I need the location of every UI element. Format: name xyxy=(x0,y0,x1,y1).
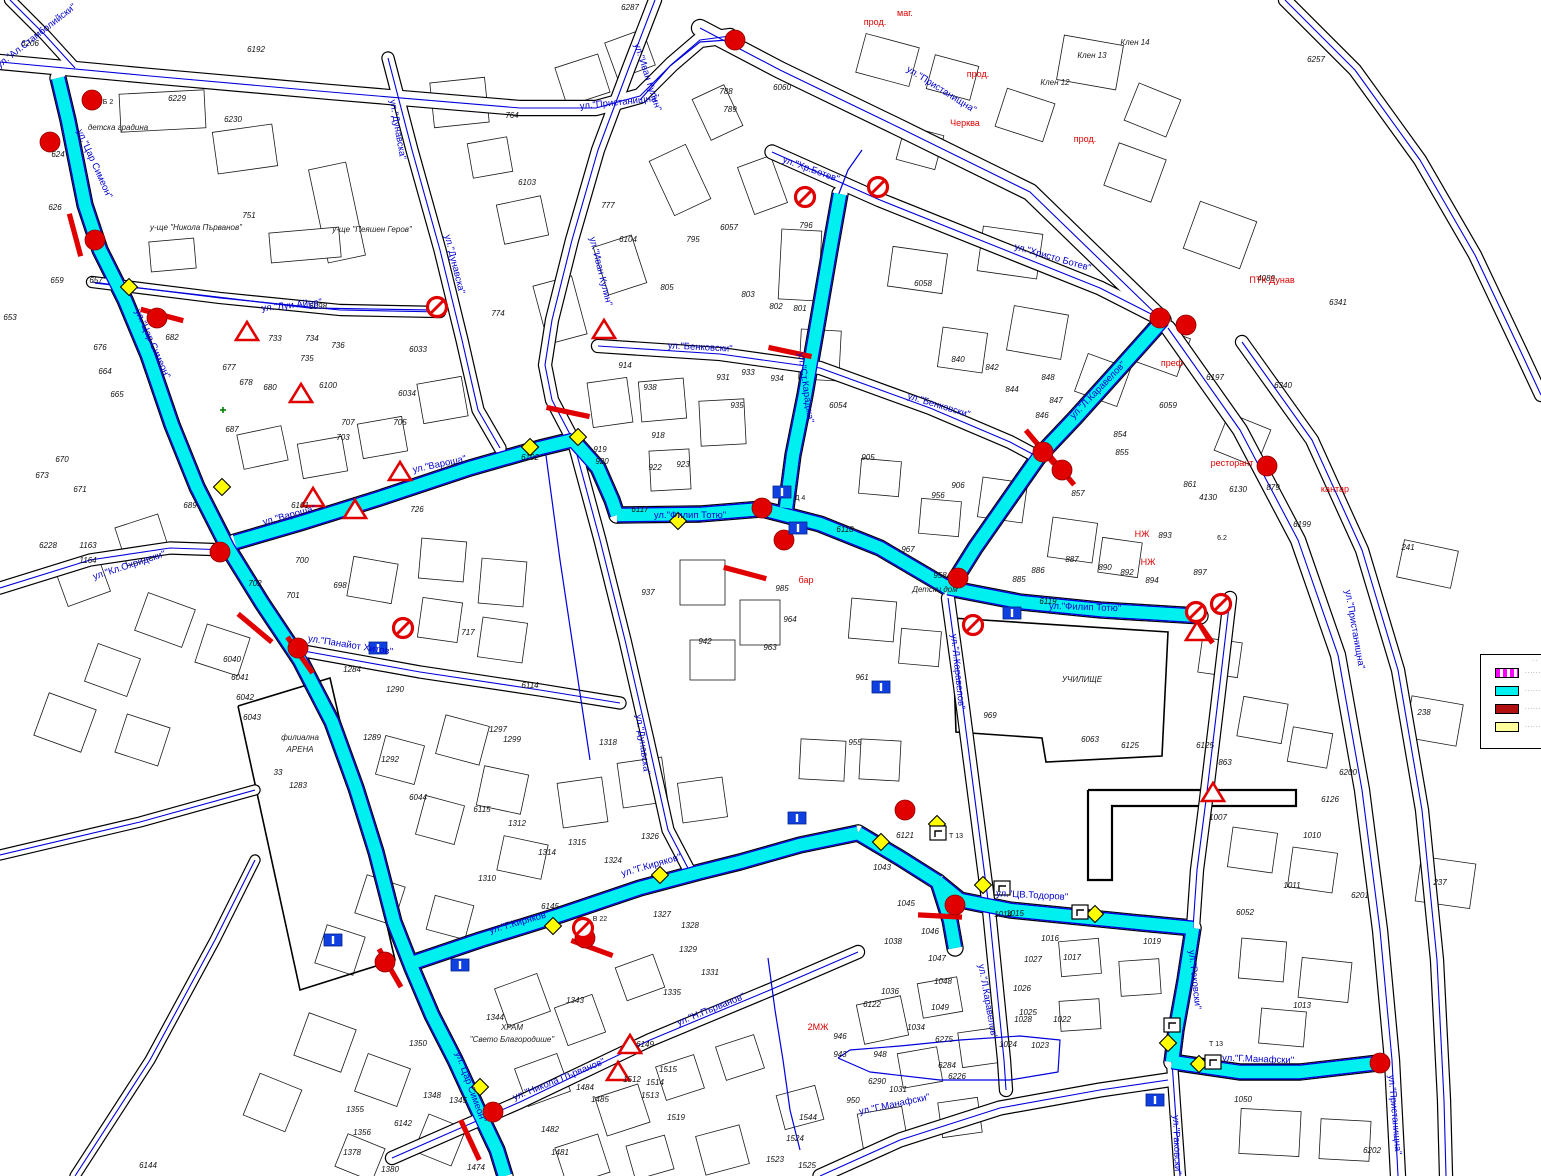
parcel-number: 6059 xyxy=(1159,401,1177,410)
hydrant-node-icon xyxy=(945,895,965,915)
parcel-number: 764 xyxy=(505,111,519,120)
legend-swatch-rehab-main xyxy=(1495,686,1519,696)
parcel-number: 893 xyxy=(1158,531,1172,540)
building-outline xyxy=(1238,938,1286,982)
parcel-number: 682 xyxy=(165,333,179,342)
building-outline xyxy=(294,1013,356,1072)
building-outline xyxy=(995,88,1055,141)
parcel-number: 934 xyxy=(770,374,784,383)
meter-box-glyph xyxy=(1154,1096,1156,1104)
parcel-number: 892 xyxy=(1120,568,1134,577)
parcel-number: 1045 xyxy=(897,899,915,908)
poi-label: детска градина xyxy=(88,123,149,132)
parcel-number: 922 xyxy=(648,463,662,472)
legend-label: ······ xyxy=(1525,706,1541,712)
parcel-number: 906 xyxy=(951,481,965,490)
poi-label-red: бар xyxy=(799,575,814,585)
map-legend: · · ·························· xyxy=(1480,654,1541,749)
parcel-number: 1299 xyxy=(503,735,521,744)
parcel-number: 1515 xyxy=(659,1065,677,1074)
building-outline xyxy=(135,593,196,648)
parcel-number: 1482 xyxy=(541,1125,559,1134)
parcel-number: 905 xyxy=(861,453,875,462)
parcel-number: 1024 xyxy=(999,1040,1017,1049)
building-outline xyxy=(1227,827,1277,873)
parcel-number: 6044 xyxy=(409,793,427,802)
parcel-number: 846 xyxy=(1035,411,1049,420)
parcel-number: 1328 xyxy=(681,921,699,930)
parcel-number: 967 xyxy=(901,545,915,554)
parcel-number: 6275 xyxy=(935,1035,953,1044)
parcel-number: 657 xyxy=(89,276,103,285)
parcel-number: 6104 xyxy=(619,235,637,244)
parcel-number: 1523 xyxy=(766,1155,784,1164)
parcel-number: 1046 xyxy=(921,927,939,936)
parcel-number: 670 xyxy=(55,455,69,464)
parcel-number: 6200 xyxy=(1339,768,1357,777)
parcel-number: 717 xyxy=(461,628,475,637)
building-outline xyxy=(776,1085,824,1129)
parcel-number: 1025 xyxy=(1019,1008,1037,1017)
parcel-number: 861 xyxy=(1183,480,1196,489)
building-outline xyxy=(1183,201,1256,269)
warning-triangle-icon xyxy=(593,320,615,338)
parcel-number: 1324 xyxy=(604,856,622,865)
poi-label: АРЕНА xyxy=(285,745,313,754)
parcel-number: 6054 xyxy=(829,401,847,410)
meter-box-glyph xyxy=(332,936,334,944)
parcel-number: 1335 xyxy=(663,988,681,997)
parcel-number: 1284 xyxy=(343,665,361,674)
building-outline xyxy=(859,458,902,496)
legend-swatch-existing-main xyxy=(1495,704,1519,714)
building-outline xyxy=(740,600,780,645)
poi-label: Детски дом xyxy=(911,585,958,594)
parcel-number: 920 xyxy=(595,457,609,466)
parcel-number: 705 xyxy=(393,418,407,427)
parcel-number: 6114 xyxy=(521,681,539,690)
building-outline xyxy=(799,739,846,781)
parcel-number: 624 xyxy=(51,150,65,159)
parcel-number: 677 xyxy=(222,363,236,372)
parcel-number: 6063 xyxy=(1081,735,1099,744)
hydrant-node-icon xyxy=(1150,308,1170,328)
parcel-number: 777 xyxy=(601,201,615,210)
hydrant-node-icon xyxy=(752,498,772,518)
parcel-number: 963 xyxy=(763,643,777,652)
parcel-number: 1348 xyxy=(423,1091,441,1100)
building-outline xyxy=(848,598,896,642)
parcel-number: 1481 xyxy=(551,1148,569,1157)
parcel-number: 1378 xyxy=(343,1148,361,1157)
parcel-number: 897 xyxy=(1193,568,1207,577)
hydrant-node-icon xyxy=(288,638,308,658)
parcel-number: 241 xyxy=(1400,543,1414,552)
parcel-number: 1297 xyxy=(489,725,507,734)
parcel-number: 847 xyxy=(1049,396,1063,405)
parcel-number: 950 xyxy=(846,1096,860,1105)
parcel-number: 803 xyxy=(741,290,755,299)
parcel-number: 931 xyxy=(716,373,729,382)
parcel-number: 671 xyxy=(73,485,86,494)
parcel-number: 969 xyxy=(983,711,997,720)
building-outline xyxy=(1239,1108,1301,1156)
parcel-number: 964 xyxy=(783,615,797,624)
parcel-number: 6033 xyxy=(409,345,427,354)
poi-label-red: прод. xyxy=(967,69,989,79)
parcel-number: 1343 xyxy=(566,996,584,1005)
building-outline xyxy=(1007,306,1069,360)
parcel-number: 1544 xyxy=(799,1113,817,1122)
poi-label: "Свето Благородише" xyxy=(470,1035,556,1044)
parcel-number: 844 xyxy=(1005,385,1019,394)
poi-label: Клен 14 xyxy=(1120,38,1150,47)
building-outline xyxy=(85,644,141,697)
parcel-number: 6229 xyxy=(168,94,186,103)
parcel-number: 751 xyxy=(242,211,255,220)
parcel-number: 1315 xyxy=(568,838,586,847)
building-outline xyxy=(34,693,96,752)
poi-label-red: НЖ xyxy=(1135,529,1150,539)
parcel-number: 774 xyxy=(491,309,505,318)
building-outline xyxy=(297,436,347,478)
parcel-number: 733 xyxy=(268,334,282,343)
hydrant-node-icon xyxy=(375,952,395,972)
parcel-number: 805 xyxy=(660,283,674,292)
parcel-number: 6121 xyxy=(896,831,914,840)
parcel-number: 1019 xyxy=(1143,937,1161,946)
poi-label: ХРАМ xyxy=(500,1023,523,1032)
parcel-number: 795 xyxy=(686,235,700,244)
symbol-annotation: 6.2 xyxy=(1217,535,1227,542)
parcel-number: 938 xyxy=(643,383,657,392)
building-outline xyxy=(417,597,462,642)
parcel-number: 1329 xyxy=(679,945,697,954)
parcel-number: 1016 xyxy=(1041,934,1059,943)
road-surface xyxy=(75,860,255,1176)
parcel-number: 653 xyxy=(3,313,17,322)
parcel-number: 1023 xyxy=(1031,1041,1049,1050)
parcel-number: 726 xyxy=(410,505,424,514)
parcel-number: 6226 xyxy=(948,1072,966,1081)
parcel-number: 676 xyxy=(93,343,107,352)
legend-item-existing-main: ······ xyxy=(1481,700,1541,718)
building-outline xyxy=(690,640,735,680)
parcel-number: 1289 xyxy=(363,733,381,742)
legend-item-rehab-main: ······ xyxy=(1481,682,1541,700)
building-outline xyxy=(416,796,465,845)
parcel-number: 1290 xyxy=(386,685,404,694)
parcel-number: 948 xyxy=(873,1050,887,1059)
parcel-number: 6040 xyxy=(223,655,241,664)
poi-label-red: Черква xyxy=(950,118,980,128)
poi-label: Клен 12 xyxy=(1040,78,1070,87)
street-label: ул."Хр.Ботев" xyxy=(781,154,841,185)
parcel-number: 855 xyxy=(1115,448,1129,457)
parcel-number: 6230 xyxy=(224,115,242,124)
hydrant-node-icon xyxy=(1176,315,1196,335)
parcel-number: 1485 xyxy=(591,1095,609,1104)
parcel-number: 702 xyxy=(248,579,262,588)
parcel-number: 1049 xyxy=(931,1003,949,1012)
parcel-number: 802 xyxy=(769,302,783,311)
parcel-number: 985 xyxy=(775,584,789,593)
parcel-number: 6340 xyxy=(1274,381,1292,390)
parcel-number: 33 xyxy=(274,768,283,777)
poi-label-red: преф xyxy=(1161,358,1184,368)
parcel-number: 848 xyxy=(1041,373,1055,382)
parcel-number: 6100 xyxy=(319,381,337,390)
parcel-number: 698 xyxy=(333,581,347,590)
building-outline xyxy=(1237,696,1288,743)
parcel-number: 943 xyxy=(833,1050,847,1059)
parcel-number: 6102 xyxy=(521,453,539,462)
parcel-number: 1314 xyxy=(538,848,556,857)
road-casing xyxy=(1168,328,1398,1176)
warning-triangle-icon xyxy=(290,384,312,402)
parcel-number: 1164 xyxy=(79,556,97,565)
parcel-number: 1514 xyxy=(646,1078,664,1087)
building-outline xyxy=(149,238,196,272)
building-outline xyxy=(436,715,490,765)
parcel-number: 1345 xyxy=(449,1096,467,1105)
valve-bar-icon xyxy=(723,565,767,581)
parcel-number: 6041 xyxy=(231,673,249,682)
parcel-number: 735 xyxy=(300,354,314,363)
building-outline xyxy=(899,628,942,666)
building-outline xyxy=(426,895,474,939)
parcel-number: 918 xyxy=(651,431,665,440)
building-outline xyxy=(497,836,548,880)
parcel-number: 1350 xyxy=(409,1039,427,1048)
building-outline xyxy=(237,426,288,470)
poi-label-red: ресторант xyxy=(1211,458,1254,468)
street-label: ул."Раковски" xyxy=(1170,1115,1183,1175)
poi-label-red: прод. xyxy=(864,17,886,27)
symbol-annotation: В 22 xyxy=(593,916,608,923)
building-outline xyxy=(467,137,512,178)
legend-label: ······ xyxy=(1525,688,1541,694)
parcel-number: 687 xyxy=(225,425,239,434)
parcel-number: 6257 xyxy=(1307,55,1325,64)
building-outline xyxy=(355,1054,411,1107)
parcel-number: 1356 xyxy=(353,1128,371,1137)
hydrant-box-icon xyxy=(1205,1055,1221,1069)
parcel-number: 890 xyxy=(1098,563,1112,572)
parcel-number: 701 xyxy=(286,591,299,600)
building-outline xyxy=(1298,957,1352,1002)
parcel-number: 1048 xyxy=(934,977,952,986)
parcel-number: 946 xyxy=(833,1032,847,1041)
parcel-number: 6144 xyxy=(139,1161,157,1170)
parcel-number: 1007 xyxy=(1209,813,1227,822)
parcel-number: 1283 xyxy=(289,781,307,790)
parcel-number: 919 xyxy=(593,445,607,454)
building-outline xyxy=(937,327,987,373)
building-outline xyxy=(212,124,277,174)
building-outline xyxy=(195,624,250,676)
meter-box-glyph xyxy=(796,814,798,822)
parcel-number: 6228 xyxy=(39,541,57,550)
parcel-number: 665 xyxy=(110,390,124,399)
poi-label: УЧИЛИЩЕ xyxy=(1061,675,1103,684)
parcel-number: 659 xyxy=(50,276,64,285)
parcel-number: 707 xyxy=(341,418,355,427)
poi-label-red: 2МЖ xyxy=(808,1022,830,1032)
hydrant-node-icon xyxy=(1257,456,1277,476)
parcel-number: 1380 xyxy=(381,1165,399,1174)
legend-swatch-planned-main xyxy=(1495,668,1519,678)
hydrant-node-icon xyxy=(1370,1053,1390,1073)
parcel-number: 854 xyxy=(1113,430,1127,439)
building-outline xyxy=(269,227,341,263)
parcel-number: 914 xyxy=(618,361,632,370)
parcel-number: 1355 xyxy=(346,1105,364,1114)
meter-box-glyph xyxy=(781,488,783,496)
parcel-number: 1331 xyxy=(701,968,719,977)
shaft-diamond-icon xyxy=(214,479,231,496)
parcel-number: 6057 xyxy=(720,223,738,232)
parcel-number: 879 xyxy=(1266,483,1280,492)
building-outline xyxy=(677,777,727,823)
parcel-number: 1312 xyxy=(508,819,526,828)
building-outline xyxy=(496,196,548,244)
parcel-number: 1050 xyxy=(1234,1095,1252,1104)
parcel-number: 956 xyxy=(931,491,945,500)
parcel-number: 1310 xyxy=(478,874,496,883)
legend-item-planned-main: ········ xyxy=(1481,664,1541,682)
poi-label: у-ще "Пеяшен Геров" xyxy=(331,225,413,234)
parcel-number: 1015 xyxy=(1006,909,1024,918)
symbol-annotation: Б 2 xyxy=(103,99,114,106)
parcel-number: 937 xyxy=(641,588,655,597)
parcel-number: 6043 xyxy=(243,713,261,722)
building-outline xyxy=(1124,83,1181,137)
building-outline xyxy=(696,1125,750,1175)
symbol-annotation: Т 13 xyxy=(1209,1041,1223,1048)
building-outline xyxy=(897,1047,942,1088)
parcel-number: 1017 xyxy=(1063,953,1081,962)
parcel-number: 6341 xyxy=(1329,298,1347,307)
road-surface xyxy=(0,790,255,855)
hydrant-box-icon xyxy=(930,826,946,840)
parcel-number: 6290 xyxy=(868,1077,886,1086)
parcel-number: 801 xyxy=(793,304,806,313)
building-outline xyxy=(615,954,665,1001)
parcel-number: 1011 xyxy=(1283,881,1300,890)
parcel-number: 1519 xyxy=(667,1113,685,1122)
building-outline xyxy=(347,556,398,603)
rehab-water-main xyxy=(858,833,938,882)
legend-label: ········ xyxy=(1525,670,1541,676)
parcel-number: 958 xyxy=(933,571,947,580)
building-outline xyxy=(859,739,901,781)
hydrant-node-icon xyxy=(1033,442,1053,462)
warning-triangle-icon xyxy=(389,462,411,480)
hydrant-node-icon xyxy=(210,542,230,562)
parcel-number: 680 xyxy=(263,383,277,392)
parcel-number: 6287 xyxy=(621,3,639,12)
poi-label-red: кантар xyxy=(1321,484,1349,494)
building-outline xyxy=(919,498,962,536)
rehab-water-main xyxy=(938,882,1193,928)
building-outline xyxy=(243,1073,302,1132)
parcel-number: 885 xyxy=(1012,575,1026,584)
parcel-number: 1031 xyxy=(889,1085,907,1094)
building-outline xyxy=(738,156,788,215)
parcel-number: 664 xyxy=(98,367,112,376)
parcel-number: 736 xyxy=(331,341,345,350)
symbol-annotation: Т 13 xyxy=(949,833,963,840)
meter-box-glyph xyxy=(797,524,799,532)
parcel-number: 6118 xyxy=(836,525,854,534)
poi-label: Клен 13 xyxy=(1077,51,1107,60)
parcel-number: 6115 xyxy=(473,805,491,814)
parcel-number: 237 xyxy=(1432,878,1447,887)
parcel-number: 840 xyxy=(951,355,965,364)
parcel-number: 788 xyxy=(719,87,733,96)
parcel-number: 6284 xyxy=(938,1061,956,1070)
parcel-number: 961 xyxy=(855,673,868,682)
parcel-number: 1038 xyxy=(884,937,902,946)
building-outline xyxy=(315,925,365,975)
parcel-number: 6192 xyxy=(247,45,265,54)
hydrant-node-icon xyxy=(1052,460,1072,480)
meter-box-glyph xyxy=(880,683,882,691)
parcel-number: 1318 xyxy=(599,738,617,747)
parcel-number: 6197 xyxy=(1206,373,1224,382)
parcel-number: 1013 xyxy=(1293,1001,1311,1010)
poi-label-red: НЖ xyxy=(1141,557,1156,567)
building-outline xyxy=(1104,143,1166,202)
building-outline xyxy=(1287,727,1332,768)
building-outline xyxy=(1259,1008,1307,1047)
hydrant-box-icon xyxy=(1164,1018,1180,1032)
parcel-number: 6199 xyxy=(1293,520,1311,529)
building-outline xyxy=(557,777,608,828)
parcel-number: 1026 xyxy=(1013,984,1031,993)
parcel-number: 6034 xyxy=(398,389,416,398)
parcel-number: 923 xyxy=(676,460,690,469)
parcel-number: 4130 xyxy=(1199,493,1217,502)
poi-label-red: маг. xyxy=(897,8,913,18)
cadastral-map-canvas: 6206619262876230622975162462665765965367… xyxy=(0,0,1541,1176)
hydrant-node-icon xyxy=(40,132,60,152)
parcel-number: 842 xyxy=(985,363,999,372)
building-outline xyxy=(716,1035,765,1081)
poi-label-red: ПТК Дунав xyxy=(1249,275,1294,285)
legend-label: ······ xyxy=(1525,724,1541,730)
poi-label: у-ще "Никола Първанов" xyxy=(149,223,243,232)
parcel-number: 1344 xyxy=(486,1013,504,1022)
building-outline xyxy=(680,560,725,605)
parcel-number: 6125 xyxy=(1196,741,1214,750)
parcel-number: 6117 xyxy=(631,505,649,514)
parcel-number: 1036 xyxy=(881,987,899,996)
parcel-number: 1524 xyxy=(786,1134,804,1143)
building-outline xyxy=(477,617,527,663)
parcel-number: 1027 xyxy=(1024,955,1042,964)
meter-box-glyph xyxy=(1011,609,1013,617)
hydrant-node-icon xyxy=(895,800,915,820)
building-outline xyxy=(587,377,633,427)
parcel-number: 678 xyxy=(239,378,253,387)
parcel-number: 1512 xyxy=(623,1075,641,1084)
poi-label-red: прод. xyxy=(1074,134,1096,144)
parcel-number: 673 xyxy=(35,471,49,480)
parcel-number: 1034 xyxy=(907,1023,925,1032)
hydrant-node-icon xyxy=(725,30,745,50)
